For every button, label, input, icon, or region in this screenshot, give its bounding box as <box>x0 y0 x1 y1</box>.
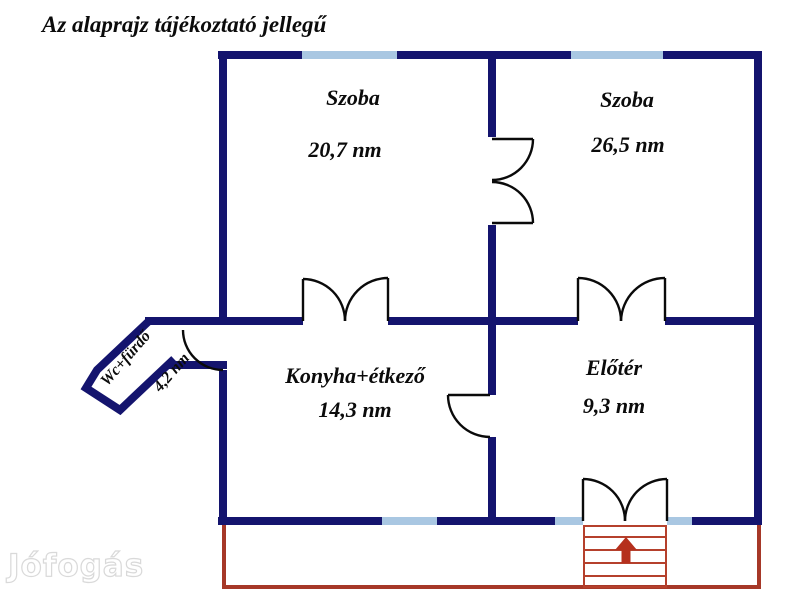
room-label-szoba-1: Szoba <box>293 86 413 110</box>
window-bottom-right <box>667 517 692 525</box>
wall-interior-vert-2 <box>488 225 496 321</box>
wall-middle-2 <box>388 317 578 325</box>
wall-interior-vert-4 <box>488 437 496 521</box>
doors <box>183 139 667 521</box>
wall-interior-vert-3 <box>488 325 496 395</box>
door-entrance <box>583 479 667 521</box>
window-bottom-left <box>382 517 437 525</box>
plan-title: Az alaprajz tájékoztató jellegű <box>42 12 326 37</box>
room-area-szoba-1: 20,7 nm <box>285 138 405 162</box>
up-arrow-icon <box>615 537 637 563</box>
wall-bottom-1 <box>218 517 382 525</box>
room-label-szoba-2: Szoba <box>567 88 687 112</box>
room-area-konyha: 14,3 nm <box>295 398 415 422</box>
jofogas-watermark: Jófogás <box>8 548 144 584</box>
window-bottom-mid <box>555 517 583 525</box>
door-szoba-konyha <box>303 278 388 321</box>
room-area-szoba-2: 26,5 nm <box>568 133 688 157</box>
wall-left-lower <box>219 370 227 525</box>
floor-plan-canvas: Az alaprajz tájékoztató jellegű Szoba 20… <box>0 0 800 600</box>
door-szoba-eloter <box>578 278 665 321</box>
door-konyha-eloter <box>448 395 490 437</box>
window-top-right <box>571 51 663 59</box>
room-label-konyha: Konyha+étkező <box>265 364 445 388</box>
walls <box>145 51 762 525</box>
terrace-outline <box>224 524 759 587</box>
door-between-szoba-rooms <box>492 139 533 223</box>
wall-middle-1 <box>145 317 303 325</box>
wall-right <box>754 51 762 525</box>
wall-top <box>218 51 762 59</box>
window-top-left <box>302 51 397 59</box>
wall-left-upper <box>219 51 227 317</box>
wall-interior-vert-1 <box>488 59 496 137</box>
wall-middle-3 <box>665 317 762 325</box>
room-label-eloter: Előtér <box>554 356 674 380</box>
wall-bottom-3 <box>692 517 762 525</box>
room-area-eloter: 9,3 nm <box>554 394 674 418</box>
